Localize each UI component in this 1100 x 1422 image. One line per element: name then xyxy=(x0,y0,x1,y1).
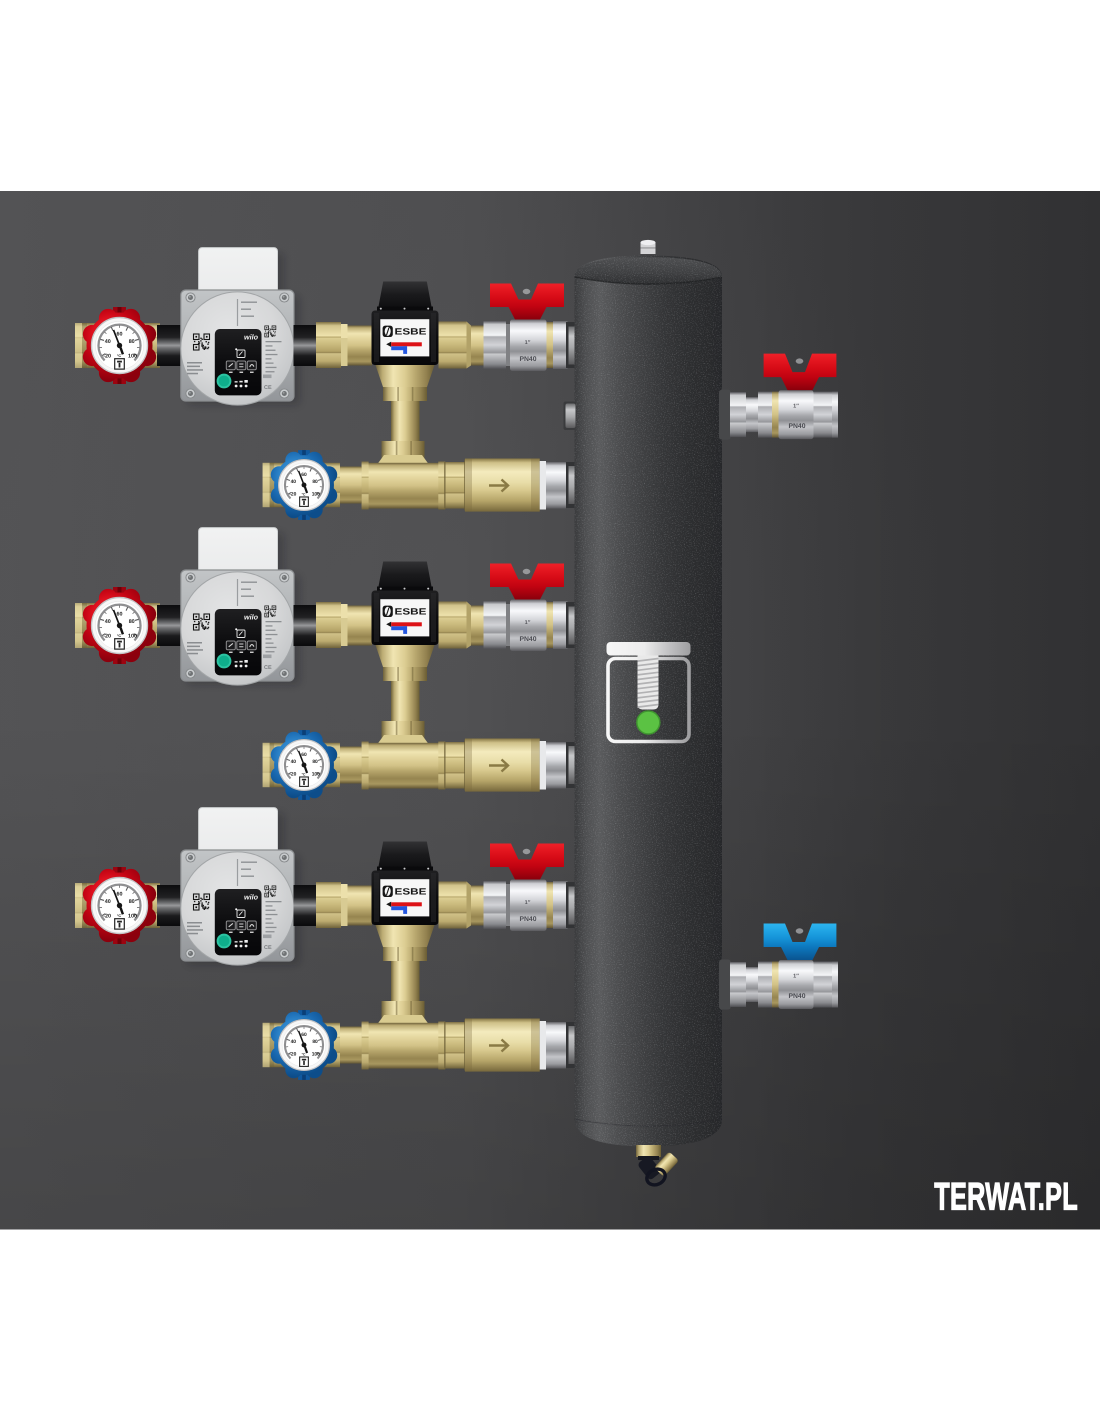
svg-text:TERWAT.PL: TERWAT.PL xyxy=(934,1176,1078,1219)
